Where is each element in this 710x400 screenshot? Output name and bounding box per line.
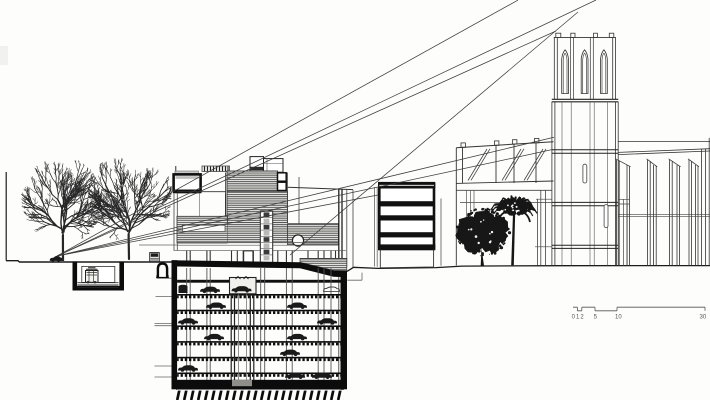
svg-text:10: 10 [615,315,622,321]
svg-text:30: 30 [700,315,707,321]
